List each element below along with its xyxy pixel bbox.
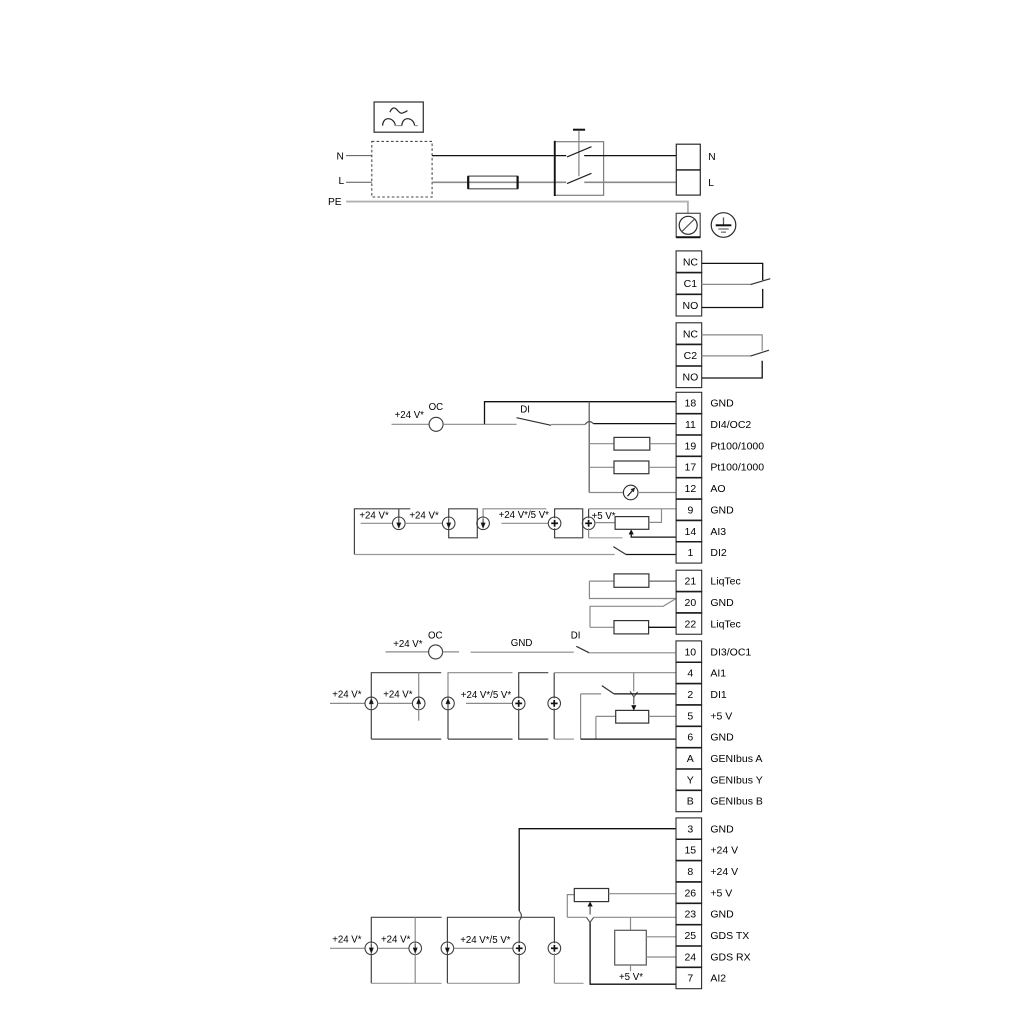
svg-text:11: 11	[685, 419, 696, 431]
svg-text:18: 18	[685, 398, 697, 410]
svg-text:AO: AO	[710, 483, 725, 495]
svg-text:22: 22	[685, 618, 697, 630]
svg-text:9: 9	[687, 504, 693, 516]
svg-text:NC: NC	[683, 328, 699, 340]
svg-text:+24 V*/5 V*: +24 V*/5 V*	[499, 510, 550, 521]
svg-text:L: L	[708, 178, 714, 189]
svg-text:LiqTec: LiqTec	[710, 618, 740, 630]
svg-text:8: 8	[687, 866, 693, 878]
svg-text:Y: Y	[687, 774, 694, 786]
svg-text:GND: GND	[710, 504, 734, 516]
svg-text:Pt100/1000: Pt100/1000	[710, 462, 764, 474]
svg-text:PE: PE	[328, 197, 342, 208]
svg-text:21: 21	[685, 576, 697, 588]
svg-text:20: 20	[685, 597, 697, 609]
svg-text:N: N	[337, 151, 344, 162]
svg-text:+24 V*: +24 V*	[359, 511, 389, 522]
svg-text:DI3/OC1: DI3/OC1	[710, 646, 751, 658]
svg-text:DI4/OC2: DI4/OC2	[710, 419, 751, 431]
svg-text:+5 V: +5 V	[710, 710, 732, 722]
svg-text:12: 12	[685, 483, 697, 495]
svg-text:B: B	[687, 796, 694, 808]
svg-text:2: 2	[687, 689, 693, 701]
svg-text:+5 V: +5 V	[710, 887, 732, 899]
svg-text:+24 V: +24 V	[710, 845, 738, 857]
svg-text:+24 V*: +24 V*	[381, 934, 411, 945]
svg-text:A: A	[687, 753, 694, 765]
svg-text:14: 14	[685, 526, 697, 538]
svg-text:+24 V*: +24 V*	[332, 934, 362, 945]
svg-text:+24 V: +24 V	[710, 866, 738, 878]
svg-text:GND: GND	[710, 909, 734, 921]
svg-text:L: L	[339, 176, 345, 187]
svg-text:GDS RX: GDS RX	[710, 951, 750, 963]
svg-text:1: 1	[687, 547, 693, 559]
svg-text:24: 24	[684, 951, 696, 963]
svg-text:3: 3	[687, 823, 693, 835]
svg-text:+24 V*: +24 V*	[409, 511, 439, 522]
svg-text:GENIbus A: GENIbus A	[710, 753, 762, 765]
svg-text:AI1: AI1	[710, 668, 726, 680]
svg-text:N: N	[708, 152, 715, 163]
svg-text:DI: DI	[520, 404, 530, 415]
svg-text:GND: GND	[710, 732, 734, 744]
svg-text:NC: NC	[683, 256, 699, 268]
svg-text:DI2: DI2	[710, 547, 727, 559]
svg-text:+24 V*/5 V*: +24 V*/5 V*	[460, 935, 511, 946]
svg-text:+24 V*: +24 V*	[395, 410, 425, 421]
svg-text:19: 19	[685, 440, 697, 452]
svg-text:+24 V*/5 V*: +24 V*/5 V*	[461, 690, 512, 701]
svg-text:25: 25	[684, 930, 696, 942]
svg-text:+24 V*: +24 V*	[332, 690, 362, 701]
svg-text:+5 V*: +5 V*	[592, 511, 616, 522]
svg-text:17: 17	[685, 462, 697, 474]
svg-text:26: 26	[684, 887, 696, 899]
svg-text:7: 7	[687, 973, 693, 985]
svg-text:GND: GND	[710, 398, 734, 410]
svg-text:NO: NO	[683, 300, 699, 312]
svg-text:NO: NO	[683, 372, 699, 384]
svg-text:Pt100/1000: Pt100/1000	[710, 440, 764, 452]
svg-text:GDS TX: GDS TX	[710, 930, 749, 942]
svg-text:GND: GND	[710, 597, 734, 609]
svg-text:5: 5	[687, 710, 693, 722]
svg-text:GENIbus Y: GENIbus Y	[710, 774, 762, 786]
svg-text:DI: DI	[571, 631, 581, 642]
svg-text:LiqTec: LiqTec	[710, 576, 740, 588]
svg-text:AI3: AI3	[710, 526, 726, 538]
svg-text:DI1: DI1	[710, 689, 727, 701]
svg-text:OC: OC	[428, 631, 443, 642]
svg-text:4: 4	[687, 668, 693, 680]
svg-text:GND: GND	[511, 638, 533, 649]
svg-text:C2: C2	[684, 350, 698, 362]
svg-text:OC: OC	[429, 402, 444, 413]
svg-text:GND: GND	[710, 823, 734, 835]
svg-text:C1: C1	[684, 278, 698, 290]
svg-text:15: 15	[684, 845, 696, 857]
svg-text:23: 23	[684, 909, 696, 921]
svg-text:+5 V*: +5 V*	[619, 972, 643, 983]
svg-text:AI2: AI2	[710, 973, 726, 985]
svg-text:GENIbus B: GENIbus B	[710, 796, 763, 808]
svg-text:+24 V*: +24 V*	[383, 690, 413, 701]
svg-text:6: 6	[687, 732, 693, 744]
svg-text:10: 10	[684, 646, 696, 658]
svg-text:+24 V*: +24 V*	[393, 639, 423, 650]
